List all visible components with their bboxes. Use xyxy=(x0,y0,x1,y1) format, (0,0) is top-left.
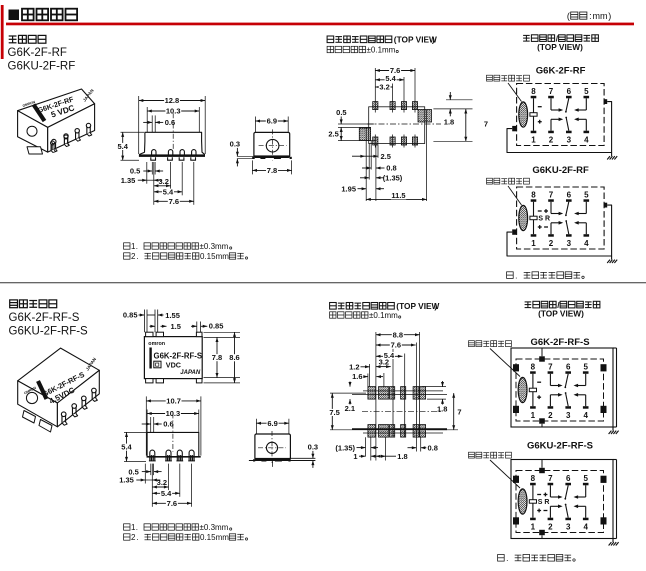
svg-text:G6KU-2F-RF: G6KU-2F-RF xyxy=(8,60,76,72)
svg-text:.: . xyxy=(515,270,517,280)
svg-text:.: . xyxy=(136,523,138,532)
svg-text:G6KU-2F-RF-S: G6KU-2F-RF-S xyxy=(527,441,593,452)
svg-text:3: 3 xyxy=(566,522,571,531)
svg-text:7.8: 7.8 xyxy=(267,166,277,175)
svg-text:7: 7 xyxy=(484,120,488,129)
svg-text:11.5: 11.5 xyxy=(391,191,405,200)
svg-text:0.6: 0.6 xyxy=(165,118,175,127)
svg-text:0.3: 0.3 xyxy=(230,140,240,149)
svg-text:S R: S R xyxy=(538,216,550,223)
svg-text::: : xyxy=(589,11,592,21)
svg-text:3.2: 3.2 xyxy=(157,478,167,487)
svg-text:12.8: 12.8 xyxy=(165,96,180,105)
svg-text:7.5: 7.5 xyxy=(329,408,339,417)
svg-text:2.5: 2.5 xyxy=(381,152,391,161)
svg-text:omron: omron xyxy=(148,341,165,347)
svg-text:7.6: 7.6 xyxy=(167,499,177,508)
svg-text:2: 2 xyxy=(548,522,553,531)
svg-text:8.6: 8.6 xyxy=(229,353,239,362)
svg-text:1.6: 1.6 xyxy=(352,372,362,381)
svg-text:6: 6 xyxy=(567,191,572,200)
svg-text:3.2: 3.2 xyxy=(158,177,168,186)
svg-text:2.5: 2.5 xyxy=(328,130,338,139)
svg-text:7: 7 xyxy=(549,191,554,200)
svg-text:4: 4 xyxy=(584,239,589,248)
svg-text:1.55: 1.55 xyxy=(165,311,180,320)
svg-text:VDC: VDC xyxy=(166,360,181,369)
svg-text:7.6: 7.6 xyxy=(391,341,401,350)
svg-text:2: 2 xyxy=(549,135,554,144)
svg-text:6: 6 xyxy=(566,474,571,483)
svg-text:7: 7 xyxy=(549,87,554,96)
svg-text:7: 7 xyxy=(548,474,553,483)
svg-text:1.8: 1.8 xyxy=(437,404,447,413)
svg-text:5: 5 xyxy=(583,363,588,372)
svg-text:): ) xyxy=(432,35,435,45)
svg-text:S R: S R xyxy=(538,499,550,506)
svg-text:2: 2 xyxy=(548,411,553,420)
svg-text:.: . xyxy=(506,553,508,563)
svg-text:0.8: 0.8 xyxy=(428,443,438,452)
svg-text:0.5: 0.5 xyxy=(130,167,140,176)
svg-text:7: 7 xyxy=(548,363,553,372)
svg-text:0.85: 0.85 xyxy=(123,311,138,320)
svg-text:8: 8 xyxy=(531,87,536,96)
svg-text:7.6: 7.6 xyxy=(169,197,179,206)
svg-text:5: 5 xyxy=(584,87,589,96)
svg-text:): ) xyxy=(608,11,611,21)
svg-text:1.8: 1.8 xyxy=(444,117,454,126)
svg-text:3: 3 xyxy=(567,135,572,144)
svg-text:1: 1 xyxy=(531,522,536,531)
svg-text:3: 3 xyxy=(566,411,571,420)
svg-text:5.4: 5.4 xyxy=(121,442,132,451)
svg-text:2: 2 xyxy=(131,252,136,261)
svg-text:0.5: 0.5 xyxy=(336,108,346,117)
svg-text:G6K-2F-RF-S: G6K-2F-RF-S xyxy=(154,351,203,360)
svg-text:(TOP VIEW): (TOP VIEW) xyxy=(537,42,583,52)
svg-text:JAPAN: JAPAN xyxy=(180,370,201,376)
svg-text:G6K-2F-RF: G6K-2F-RF xyxy=(536,66,586,77)
svg-text:2: 2 xyxy=(549,239,554,248)
svg-text:8: 8 xyxy=(531,363,536,372)
svg-text:8: 8 xyxy=(531,474,536,483)
svg-text:5: 5 xyxy=(584,191,589,200)
svg-text:6.9: 6.9 xyxy=(267,117,277,126)
svg-text:3.2: 3.2 xyxy=(379,358,389,367)
svg-text:±0.1mm: ±0.1mm xyxy=(367,46,396,55)
svg-text:5: 5 xyxy=(583,474,588,483)
svg-text:8: 8 xyxy=(531,191,536,200)
svg-text:1: 1 xyxy=(531,135,536,144)
svg-text:10.7: 10.7 xyxy=(166,397,181,406)
svg-text:.: . xyxy=(136,242,138,251)
svg-text:±0.3mm: ±0.3mm xyxy=(200,523,229,532)
svg-text:(1.35): (1.35) xyxy=(383,174,403,183)
svg-text:G6KU-2F-RF: G6KU-2F-RF xyxy=(532,165,589,176)
svg-text:7.8: 7.8 xyxy=(212,353,222,362)
svg-text:.: . xyxy=(136,533,138,542)
svg-text:0.85: 0.85 xyxy=(209,322,224,331)
svg-text:0.6: 0.6 xyxy=(163,420,173,429)
svg-text:2: 2 xyxy=(131,533,136,542)
svg-text:6.9: 6.9 xyxy=(267,419,277,428)
svg-text:1.2: 1.2 xyxy=(349,362,359,371)
svg-text:G6K-2F-RF-S: G6K-2F-RF-S xyxy=(9,312,80,324)
svg-text:.: . xyxy=(136,252,138,261)
svg-text:G6KU-2F-RF-S: G6KU-2F-RF-S xyxy=(9,326,89,338)
svg-text:8.8: 8.8 xyxy=(393,330,403,339)
svg-text:1.95: 1.95 xyxy=(341,184,356,193)
svg-text:4: 4 xyxy=(583,411,588,420)
svg-text:mm: mm xyxy=(593,11,608,21)
svg-text:0.8: 0.8 xyxy=(386,164,396,173)
svg-text:7: 7 xyxy=(457,408,461,417)
svg-text:5.4: 5.4 xyxy=(161,489,172,498)
svg-text:1: 1 xyxy=(531,411,536,420)
svg-text:3.2: 3.2 xyxy=(379,83,389,92)
svg-text:±0.1mm: ±0.1mm xyxy=(369,311,398,320)
svg-text:5.4: 5.4 xyxy=(163,187,174,196)
svg-text:0.3: 0.3 xyxy=(308,443,318,452)
svg-text:(TOP VIEW): (TOP VIEW) xyxy=(538,309,584,319)
svg-text:1.35: 1.35 xyxy=(121,176,136,185)
svg-text:G6K-2F-RF: G6K-2F-RF xyxy=(8,47,67,59)
svg-text:5.4: 5.4 xyxy=(117,142,128,151)
svg-text:2.1: 2.1 xyxy=(345,404,355,413)
svg-text:0.15mm: 0.15mm xyxy=(200,533,229,542)
svg-text:1.35: 1.35 xyxy=(119,476,134,485)
svg-text:3: 3 xyxy=(567,239,572,248)
svg-text:): ) xyxy=(434,301,437,311)
svg-text:0.15mm: 0.15mm xyxy=(200,252,229,261)
svg-text:1.8: 1.8 xyxy=(397,452,407,461)
svg-text:4: 4 xyxy=(583,522,588,531)
svg-text:1: 1 xyxy=(353,452,357,461)
svg-text:1: 1 xyxy=(531,239,536,248)
svg-text:±0.3mm: ±0.3mm xyxy=(200,242,229,251)
svg-text:(: ( xyxy=(567,11,570,21)
svg-text:6: 6 xyxy=(566,363,571,372)
svg-text:G6K-2F-RF-S: G6K-2F-RF-S xyxy=(530,337,589,348)
svg-text:6: 6 xyxy=(567,87,572,96)
svg-text:1.5: 1.5 xyxy=(171,322,181,331)
svg-text:4: 4 xyxy=(584,135,589,144)
